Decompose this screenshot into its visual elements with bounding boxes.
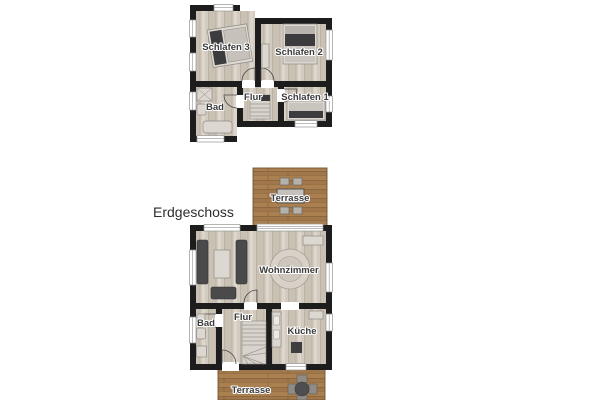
sideboard xyxy=(303,236,323,245)
kitchen-sideboard xyxy=(309,311,323,319)
toilet xyxy=(197,328,206,339)
ground-floor-plan: Erdgeschoss Terrasse Terrasse xyxy=(153,168,333,400)
terrace-bottom: Terrasse xyxy=(218,369,325,400)
ground-label-wohnzimmer: Wohnzimmer xyxy=(259,265,319,276)
ground-label-bad: Bad xyxy=(197,318,215,329)
sofa-bottom xyxy=(211,287,236,299)
coffee-table xyxy=(214,250,230,278)
floorplan-canvas: Schlafen 3 Schlafen 2 Flur Schlafen 1 Ba… xyxy=(0,0,600,400)
sofa-right xyxy=(236,240,247,284)
washer xyxy=(197,346,207,357)
upper-bed-schlafen1 xyxy=(287,101,325,120)
terrace-bottom-label: Terrasse xyxy=(232,385,271,396)
upper-label-schlafen2: Schlafen 2 xyxy=(275,47,323,58)
ground-floor-title: Erdgeschoss xyxy=(153,204,234,220)
ground-stairs xyxy=(242,321,266,364)
terrace-top-label: Terrasse xyxy=(271,193,310,204)
upper-floor-plan: Schlafen 3 Schlafen 2 Flur Schlafen 1 Ba… xyxy=(190,5,333,143)
ground-label-flur: Flur xyxy=(234,312,252,323)
upper-label-schlafen1: Schlafen 1 xyxy=(281,92,329,103)
floorplan-page: Schlafen 3 Schlafen 2 Flur Schlafen 1 Ba… xyxy=(0,0,600,400)
upper-label-bad: Bad xyxy=(206,102,224,113)
upper-label-flur: Flur xyxy=(244,92,262,103)
terrace-top: Terrasse xyxy=(253,168,327,228)
wardrobe xyxy=(262,44,269,68)
stove xyxy=(291,342,302,353)
terrace-door xyxy=(257,224,323,231)
toilet xyxy=(197,104,206,115)
bathtub xyxy=(203,121,232,133)
ground-label-kueche: Küche xyxy=(287,326,316,337)
sofa-left xyxy=(197,240,208,284)
upper-label-schlafen3: Schlafen 3 xyxy=(202,42,250,53)
